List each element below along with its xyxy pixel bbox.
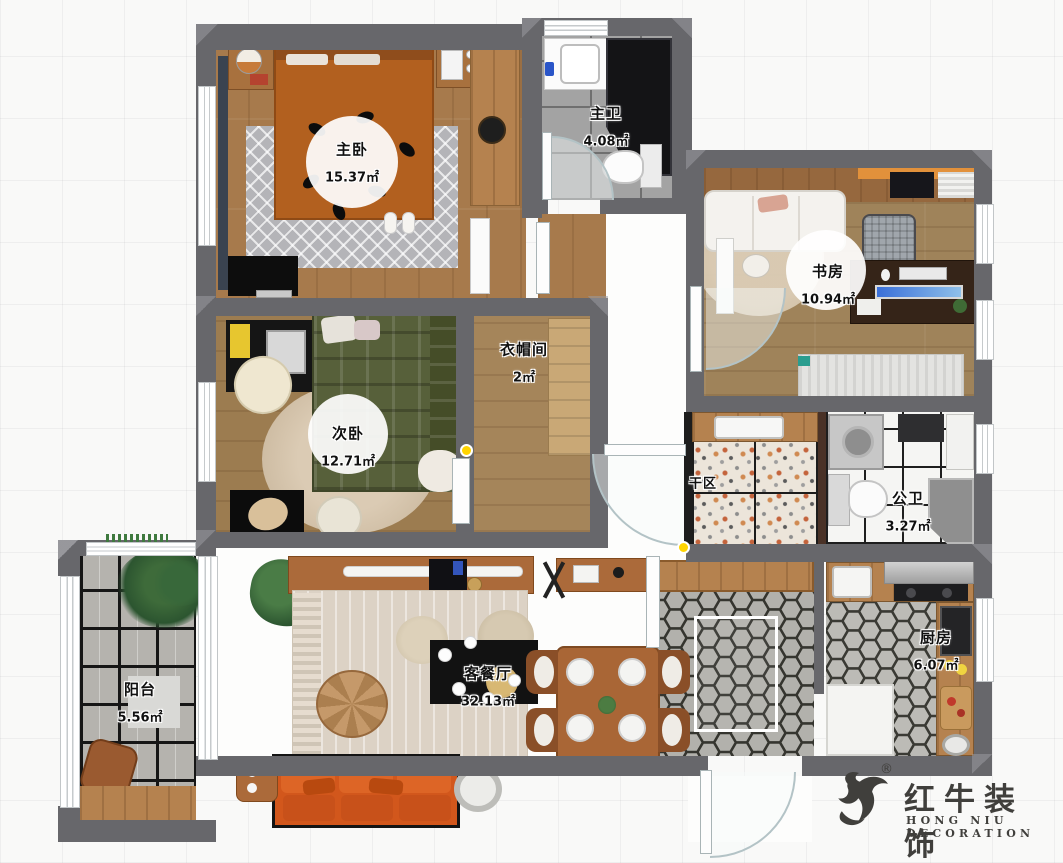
dining-chair[interactable] xyxy=(526,708,558,752)
dining-table[interactable] xyxy=(556,646,660,764)
registered-mark: ® xyxy=(880,762,893,777)
entry-bench[interactable] xyxy=(652,560,814,592)
wall-corner xyxy=(196,24,218,46)
sofa-cushion-line xyxy=(752,196,754,250)
desk-books-yellow xyxy=(230,324,250,358)
nightstand-book xyxy=(250,74,268,85)
light-point[interactable] xyxy=(677,541,690,554)
wall-corner xyxy=(588,296,608,316)
table-lamp[interactable] xyxy=(236,48,262,74)
wall-corner xyxy=(196,530,216,550)
rug-fringe xyxy=(293,593,321,755)
wall xyxy=(600,198,692,214)
dining-chair[interactable] xyxy=(658,708,690,752)
wall-corner xyxy=(686,150,706,170)
wall xyxy=(686,544,992,562)
table-plant xyxy=(598,696,616,714)
room-label-cloakroom: 衣帽间2㎡ xyxy=(500,339,548,386)
entry-door-arc xyxy=(710,772,796,858)
room-label-balcony: 阳台5.56㎡ xyxy=(117,679,162,726)
burner xyxy=(906,588,916,598)
wall-corner xyxy=(972,544,992,564)
plate xyxy=(618,714,646,742)
kitchen-sink-small xyxy=(832,566,872,598)
dry-area-floor[interactable] xyxy=(692,442,818,546)
console-bowl xyxy=(613,567,624,578)
desk-mouse xyxy=(881,269,890,281)
window[interactable] xyxy=(86,542,196,556)
bed2-pillow xyxy=(320,314,357,344)
desk-paper xyxy=(857,299,881,315)
door-leaf-foyer[interactable] xyxy=(646,556,660,648)
slipper xyxy=(402,212,415,234)
window[interactable] xyxy=(976,300,994,360)
shoe-cabinet-outline[interactable] xyxy=(694,616,778,732)
door-leaf-cloakroom[interactable] xyxy=(452,458,470,524)
window[interactable] xyxy=(976,598,994,682)
wall-corner xyxy=(196,296,216,316)
wall xyxy=(686,396,992,412)
chandelier-bulb xyxy=(438,648,452,662)
fruit-plate xyxy=(942,734,970,756)
balcony-living-window[interactable] xyxy=(198,556,218,760)
bedroom-shelf-strip[interactable] xyxy=(218,56,228,290)
cooktop[interactable] xyxy=(894,584,968,601)
window[interactable] xyxy=(198,382,216,482)
bedroom-wardrobe-white[interactable] xyxy=(470,218,490,294)
pumpkin-ottoman[interactable] xyxy=(316,670,388,738)
balcony-deck xyxy=(80,786,196,820)
desk-monitor xyxy=(875,285,963,299)
chair-seat xyxy=(534,656,554,688)
dry-area-sink xyxy=(714,416,784,439)
hongniu-bull-icon xyxy=(826,766,898,842)
room-label-living-dining: 客餐厅32.13㎡ xyxy=(461,663,515,710)
door-leaf-master-bath[interactable] xyxy=(542,132,552,200)
folding-stand[interactable] xyxy=(538,560,570,600)
dining-chair[interactable] xyxy=(658,650,690,694)
room-label-second-bedroom: 次卧12.71㎡ xyxy=(321,423,375,470)
window[interactable] xyxy=(60,576,80,808)
teal-box xyxy=(798,356,810,366)
wall xyxy=(818,412,826,544)
pb-toilet-tank[interactable] xyxy=(828,474,850,526)
wall-corner xyxy=(672,18,692,38)
kitchen-island-white[interactable] xyxy=(826,684,894,756)
wall xyxy=(814,562,824,694)
window[interactable] xyxy=(976,204,994,264)
burner xyxy=(942,588,952,598)
wall xyxy=(196,298,608,316)
tv-blue-books xyxy=(453,561,463,575)
dining-chair[interactable] xyxy=(526,650,558,694)
tomato xyxy=(947,697,956,706)
sofa-arm-pillow xyxy=(368,778,403,796)
wall xyxy=(58,820,216,842)
room-label-master-bath: 主卫4.08㎡ xyxy=(583,103,628,150)
sofa-seat-cushion xyxy=(283,795,335,821)
entry-door-leaf[interactable] xyxy=(700,770,712,854)
light-point[interactable] xyxy=(460,444,473,457)
wall xyxy=(590,298,608,548)
wall-corner xyxy=(522,18,542,38)
tomato xyxy=(957,709,965,717)
plate xyxy=(566,658,594,686)
brand-logo: ® 红牛装饰 HONG NIU DECORATION xyxy=(818,762,1056,850)
washing-machine[interactable] xyxy=(828,414,884,470)
study-black-device xyxy=(890,172,934,198)
bed-pillow xyxy=(286,54,328,65)
chair-seat xyxy=(662,714,682,746)
wall xyxy=(196,756,708,776)
door-leaf-master-bedroom[interactable] xyxy=(536,222,550,294)
magazine xyxy=(573,565,599,583)
tv-console[interactable] xyxy=(288,556,534,594)
wall xyxy=(196,532,608,548)
bedroom-soundbar xyxy=(256,290,292,298)
wall xyxy=(522,198,548,214)
room-label-study: 书房10.94㎡ xyxy=(801,261,855,308)
window[interactable] xyxy=(198,86,216,246)
sofa-seat-cushion xyxy=(341,795,393,821)
desk-keyboard xyxy=(899,267,947,280)
bed2-pillow xyxy=(354,320,380,340)
wall-corner xyxy=(972,150,992,170)
brand-subtitle: HONG NIU DECORATION xyxy=(906,814,1056,840)
chandelier-bulb xyxy=(464,636,477,649)
plate xyxy=(618,658,646,686)
study-shutter xyxy=(938,172,974,198)
room-label-master-bedroom: 主卧15.37㎡ xyxy=(325,139,379,186)
wall-corner xyxy=(58,540,78,560)
slipper xyxy=(384,212,397,234)
wall xyxy=(522,36,542,218)
pb-toilet-bowl[interactable] xyxy=(848,480,888,518)
sofa-seat-cushion xyxy=(399,795,451,821)
cloakroom-wardrobe[interactable] xyxy=(548,318,592,456)
dressing-stool[interactable] xyxy=(478,116,506,144)
door-leaf-study[interactable] xyxy=(690,286,702,372)
washer-door xyxy=(842,426,874,458)
nightstand-magazine xyxy=(441,50,463,80)
chair-seat xyxy=(662,656,682,688)
sofa-arm-pillow xyxy=(302,777,335,795)
room-label-public-bath: 公卫3.27㎡ xyxy=(885,488,930,535)
window[interactable] xyxy=(544,20,608,36)
side-console[interactable] xyxy=(556,558,660,592)
sofa-pillow-pink xyxy=(757,194,789,213)
desk-plant xyxy=(953,299,967,313)
room-label-dry-area: 干区 xyxy=(689,473,717,492)
plate xyxy=(566,714,594,742)
pb-storage-black xyxy=(898,414,944,442)
bath-sink xyxy=(560,44,600,84)
cutting-board xyxy=(940,686,972,730)
bath-toiletries xyxy=(545,62,554,76)
study-floor-vase xyxy=(742,254,770,278)
study-desk[interactable] xyxy=(850,260,976,324)
window[interactable] xyxy=(976,424,994,474)
wall xyxy=(196,24,526,50)
pb-vanity[interactable] xyxy=(946,414,974,470)
bed-pillow xyxy=(334,54,380,65)
floorplan-canvas: 主卧15.37㎡ 主卫4.08㎡ 书房10.94㎡ 衣帽间2㎡ 次卧12.71㎡… xyxy=(0,0,1063,863)
cup xyxy=(247,783,257,793)
room-label-kitchen: 厨房6.07㎡ xyxy=(913,627,958,674)
door-leaf-second-bedroom[interactable] xyxy=(604,444,686,456)
chair-seat xyxy=(534,714,554,746)
wall xyxy=(676,150,992,168)
